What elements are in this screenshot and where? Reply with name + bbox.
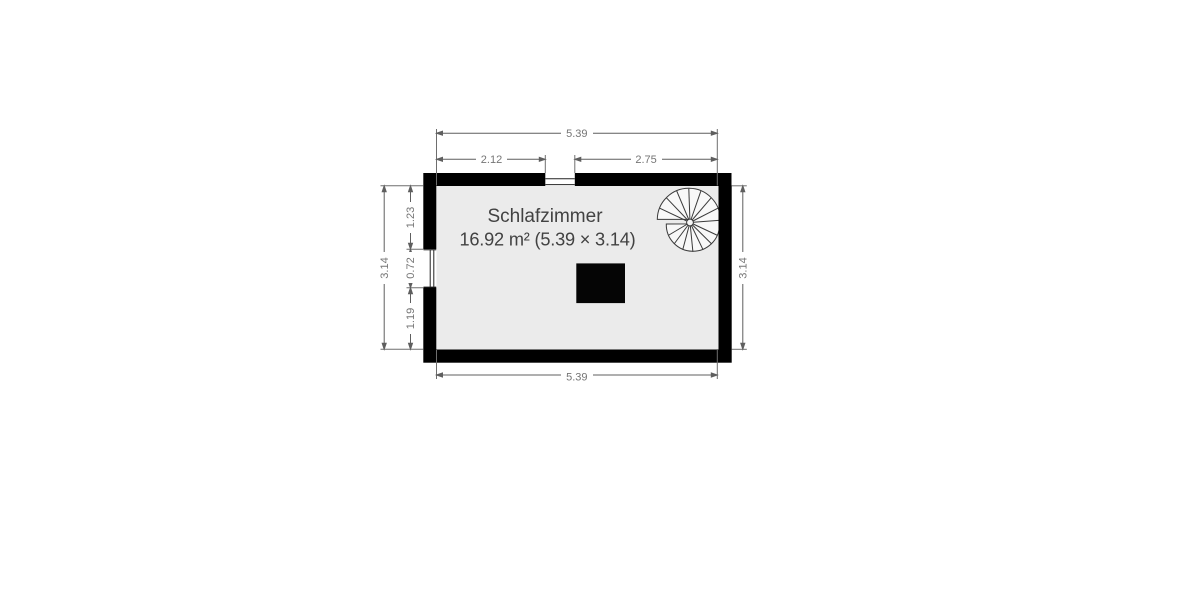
svg-text:3.14: 3.14: [738, 257, 750, 278]
svg-text:1.23: 1.23: [405, 207, 417, 228]
svg-text:16.92 m² (5.39 × 3.14): 16.92 m² (5.39 × 3.14): [459, 230, 635, 250]
svg-text:1.19: 1.19: [405, 308, 417, 329]
svg-text:0.72: 0.72: [405, 257, 417, 278]
svg-text:5.39: 5.39: [566, 128, 587, 140]
svg-text:2.75: 2.75: [635, 154, 656, 166]
svg-text:2.12: 2.12: [481, 154, 502, 166]
svg-text:3.14: 3.14: [379, 257, 391, 278]
svg-text:5.39: 5.39: [566, 372, 587, 384]
svg-text:Schlafzimmer: Schlafzimmer: [487, 206, 603, 227]
